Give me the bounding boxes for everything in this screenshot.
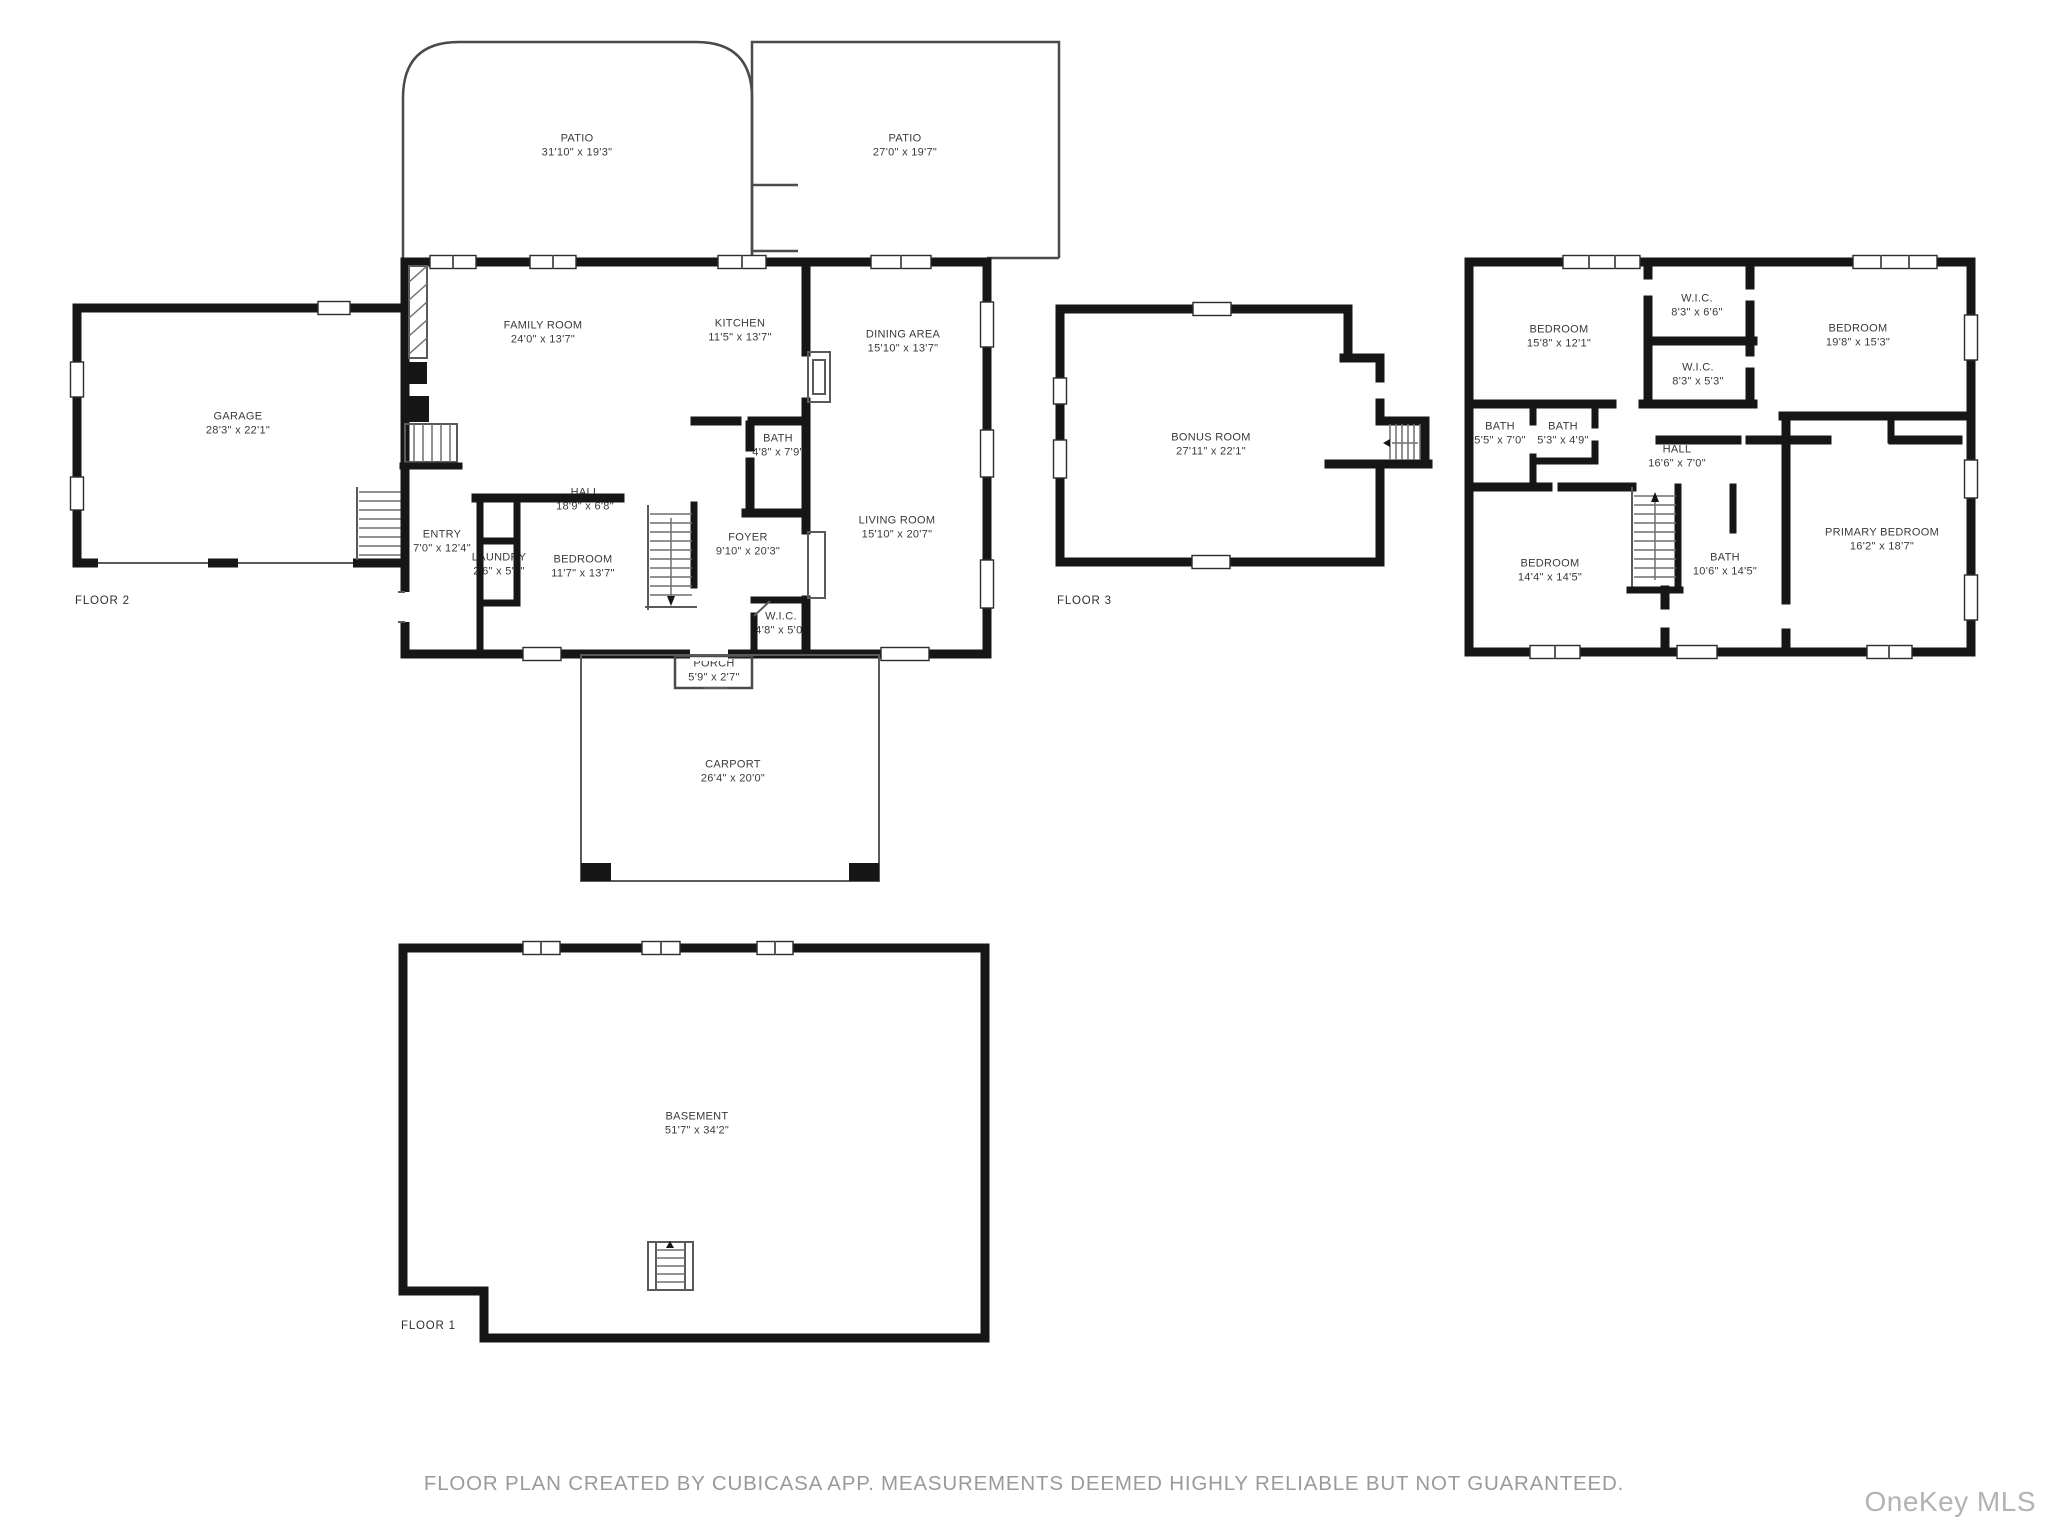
foyer-stairs-icon — [645, 505, 697, 610]
room-name: BATH — [1485, 421, 1515, 435]
room-dims: 10'6" x 14'5" — [1693, 565, 1757, 579]
room-name: BEDROOM — [1530, 324, 1589, 338]
room-dims: 16'2" x 18'7" — [1850, 540, 1914, 554]
floor-tag-3: FLOOR 3 — [1057, 595, 1112, 607]
room-label-bath-floor2: BATH4'8" x 7'9" — [752, 433, 803, 460]
room-label-living-room: LIVING ROOM15'10" x 20'7" — [859, 515, 936, 542]
floor-tag-2: FLOOR 2 — [75, 595, 130, 607]
main-house-walls — [398, 256, 994, 662]
room-label-bedroom-nw: BEDROOM15'8" x 12'1" — [1527, 324, 1591, 351]
room-dims: 15'10" x 13'7" — [868, 342, 939, 356]
room-name: BONUS ROOM — [1171, 432, 1250, 446]
room-dims: 5'3" x 4'9" — [1537, 434, 1588, 448]
footer-disclaimer: FLOOR PLAN CREATED BY CUBICASA APP. MEAS… — [424, 1472, 1624, 1496]
room-label-laundry: LAUNDRY2'6" x 5'0" — [472, 552, 526, 579]
room-name: HALL — [571, 487, 600, 501]
garage-stairs-icon — [357, 487, 401, 560]
room-dims: 8'3" x 6'6" — [1671, 306, 1722, 320]
room-dims: 51'7" x 34'2" — [665, 1124, 729, 1138]
room-dims: 26'4" x 20'0" — [701, 772, 765, 786]
room-name: W.I.C. — [1682, 362, 1714, 376]
room-dims: 8'3" x 5'3" — [1672, 375, 1723, 389]
room-dims: 18'9" x 6'8" — [556, 500, 614, 514]
room-dims: 27'11" x 22'1" — [1176, 445, 1246, 459]
room-dims: 15'10" x 20'7" — [862, 528, 933, 542]
room-name: BATH — [1710, 552, 1740, 566]
room-label-foyer: FOYER9'10" x 20'3" — [716, 532, 780, 559]
room-label-bath-55: BATH5'5" x 7'0" — [1474, 421, 1525, 448]
room-label-garage: GARAGE28'3" x 22'1" — [206, 411, 270, 438]
room-name: FAMILY ROOM — [504, 320, 583, 334]
room-dims: 11'7" x 13'7" — [551, 567, 614, 581]
basement-walls — [403, 942, 985, 1339]
room-name: PATIO — [889, 133, 922, 147]
room-name: BASEMENT — [666, 1111, 729, 1125]
room-dims: 28'3" x 22'1" — [206, 424, 270, 438]
room-dims: 31'10" x 19'3" — [542, 146, 613, 160]
room-name: FOYER — [728, 532, 767, 546]
room-name: CARPORT — [705, 759, 761, 773]
room-name: GARAGE — [214, 411, 263, 425]
room-dims: 4'8" x 7'9" — [752, 446, 803, 460]
room-dims: 27'0" x 19'7" — [873, 146, 937, 160]
room-name: HALL — [1663, 444, 1692, 458]
room-label-wic-floor2: W.I.C.4'8" x 5'0" — [755, 611, 806, 638]
room-name: BEDROOM — [1829, 323, 1888, 337]
room-name: PATIO — [561, 133, 594, 147]
room-label-wic-1: W.I.C.8'3" x 6'6" — [1671, 293, 1722, 320]
room-dims: 11'5" x 13'7" — [708, 331, 771, 345]
room-label-bath-53: BATH5'3" x 4'9" — [1537, 421, 1588, 448]
floorplan-drawing — [0, 0, 2048, 1536]
room-name: LIVING ROOM — [859, 515, 936, 529]
room-name: KITCHEN — [715, 318, 765, 332]
room-label-bedroom-sw: BEDROOM14'4" x 14'5" — [1518, 558, 1582, 585]
room-label-bonus-room: BONUS ROOM27'11" x 22'1" — [1171, 432, 1250, 459]
room-label-patio-2: PATIO27'0" x 19'7" — [873, 133, 937, 160]
room-label-wic-2: W.I.C.8'3" x 5'3" — [1672, 362, 1723, 389]
room-name: BEDROOM — [554, 554, 613, 568]
room-label-entry: ENTRY7'0" x 12'4" — [413, 529, 471, 556]
room-name: BATH — [763, 433, 793, 447]
room-dims: 9'10" x 20'3" — [716, 545, 780, 559]
room-name: ENTRY — [423, 529, 462, 543]
room-label-hall-floor3: HALL16'6" x 7'0" — [1648, 444, 1706, 471]
room-name: PORCH — [693, 658, 734, 672]
room-dims: 7'0" x 12'4" — [413, 542, 471, 556]
room-name: W.I.C. — [1681, 293, 1713, 307]
room-label-family-room: FAMILY ROOM24'0" x 13'7" — [504, 320, 583, 347]
watermark-onekey-mls: OneKey MLS — [1864, 1486, 2036, 1518]
room-label-porch: PORCH5'9" x 2'7" — [688, 658, 739, 685]
room-dims: 19'8" x 15'3" — [1826, 336, 1890, 350]
patio-walls — [403, 42, 1059, 258]
room-dims: 14'4" x 14'5" — [1518, 571, 1582, 585]
room-name: DINING AREA — [866, 329, 940, 343]
room-dims: 2'6" x 5'0" — [473, 565, 524, 579]
room-label-carport: CARPORT26'4" x 20'0" — [701, 759, 765, 786]
bonus-stairs-icon — [1383, 424, 1420, 460]
room-label-bedroom-ne: BEDROOM19'8" x 15'3" — [1826, 323, 1890, 350]
room-label-hall-floor2: HALL18'9" x 6'8" — [556, 487, 614, 514]
room-dims: 4'8" x 5'0" — [755, 624, 806, 638]
stairwell-hatch-icon — [409, 266, 429, 422]
room-dims: 16'6" x 7'0" — [1648, 457, 1706, 471]
room-name: BEDROOM — [1521, 558, 1580, 572]
hall-steps-icon — [403, 424, 459, 466]
room-name: BATH — [1548, 421, 1578, 435]
floorplan-page: PATIO31'10" x 19'3" PATIO27'0" x 19'7" G… — [0, 0, 2048, 1536]
basement-stairs-icon — [648, 1241, 693, 1290]
room-label-dining-area: DINING AREA15'10" x 13'7" — [866, 329, 940, 356]
room-label-kitchen: KITCHEN11'5" x 13'7" — [708, 318, 771, 345]
room-label-bedroom-floor2: BEDROOM11'7" x 13'7" — [551, 554, 614, 581]
room-name: PRIMARY BEDROOM — [1825, 527, 1939, 541]
room-label-patio-1: PATIO31'10" x 19'3" — [542, 133, 613, 160]
room-name: W.I.C. — [765, 611, 797, 625]
upper-unit-walls — [1469, 256, 1978, 659]
room-label-primary-bedroom: PRIMARY BEDROOM16'2" x 18'7" — [1825, 527, 1939, 554]
room-dims: 5'5" x 7'0" — [1474, 434, 1525, 448]
room-label-bath-106: BATH10'6" x 14'5" — [1693, 552, 1757, 579]
room-label-basement: BASEMENT51'7" x 34'2" — [665, 1111, 729, 1138]
upper-stairs-icon — [1630, 487, 1680, 590]
room-dims: 5'9" x 2'7" — [688, 671, 739, 685]
room-dims: 15'8" x 12'1" — [1527, 337, 1591, 351]
room-name: LAUNDRY — [472, 552, 526, 566]
room-dims: 24'0" x 13'7" — [511, 333, 575, 347]
floor-tag-1: FLOOR 1 — [401, 1320, 456, 1332]
